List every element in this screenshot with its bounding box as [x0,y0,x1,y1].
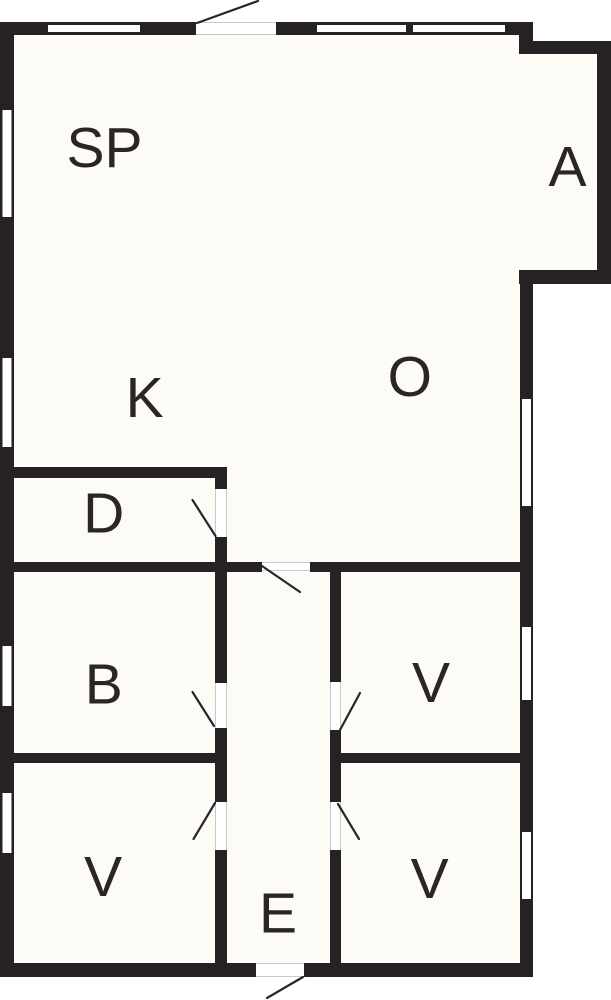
svg-text:E: E [259,882,297,946]
svg-text:V: V [412,651,450,715]
svg-text:K: K [126,366,164,430]
svg-text:B: B [85,653,123,717]
svg-text:SP: SP [66,116,142,180]
svg-text:V: V [411,847,449,911]
svg-text:O: O [388,345,432,409]
svg-text:A: A [548,135,586,199]
svg-text:D: D [83,482,124,546]
svg-text:V: V [84,845,122,909]
